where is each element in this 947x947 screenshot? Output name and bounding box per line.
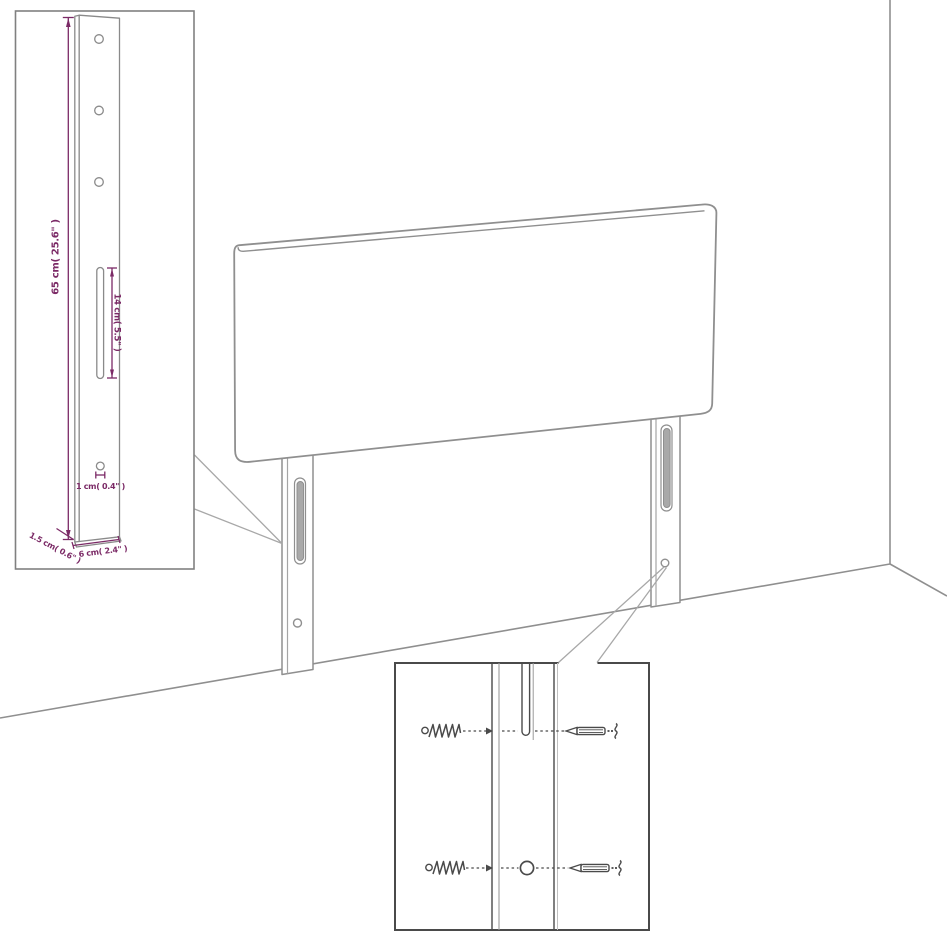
- leg-hole-top: [95, 35, 104, 44]
- diagram-canvas: 65 cm( 25.6" ) 14 cm( 5.5" ) 1 cm( 0.4" …: [0, 0, 947, 947]
- leg-hole-middle: [95, 106, 104, 115]
- floor-line-right: [890, 564, 947, 596]
- headboard-leg-left: [282, 438, 313, 675]
- inset-mounting-hardware: [395, 663, 649, 930]
- headboard-leg-right: [651, 404, 680, 607]
- headboard-panel: [234, 204, 716, 462]
- leg-slot: [297, 482, 304, 561]
- leg-small-hole: [96, 462, 104, 470]
- inset-leg-dimensions: 65 cm( 25.6" ) 14 cm( 5.5" ) 1 cm( 0.4" …: [16, 11, 195, 569]
- slot-dimension-label: 14 cm( 5.5" ): [112, 294, 122, 352]
- leg-hole: [661, 559, 669, 567]
- callout-lines: [195, 455, 667, 663]
- leg-side-face: [75, 15, 79, 543]
- leg-slot: [97, 268, 104, 379]
- hole-dimension-label: 1 cm( 0.4" ): [76, 482, 125, 491]
- leg-slot: [664, 429, 671, 508]
- height-dimension-label: 65 cm( 25.6" ): [51, 219, 62, 295]
- headboard-assembly-diagram: 65 cm( 25.6" ) 14 cm( 5.5" ) 1 cm( 0.4" …: [0, 0, 947, 947]
- leg-hole: [294, 619, 302, 627]
- callout-left-leg: [195, 455, 283, 544]
- leg-three-quarter-view: [75, 15, 121, 547]
- leg-hole-lower: [95, 178, 104, 187]
- panel-outline: [234, 204, 716, 462]
- mounting-hole: [520, 861, 533, 874]
